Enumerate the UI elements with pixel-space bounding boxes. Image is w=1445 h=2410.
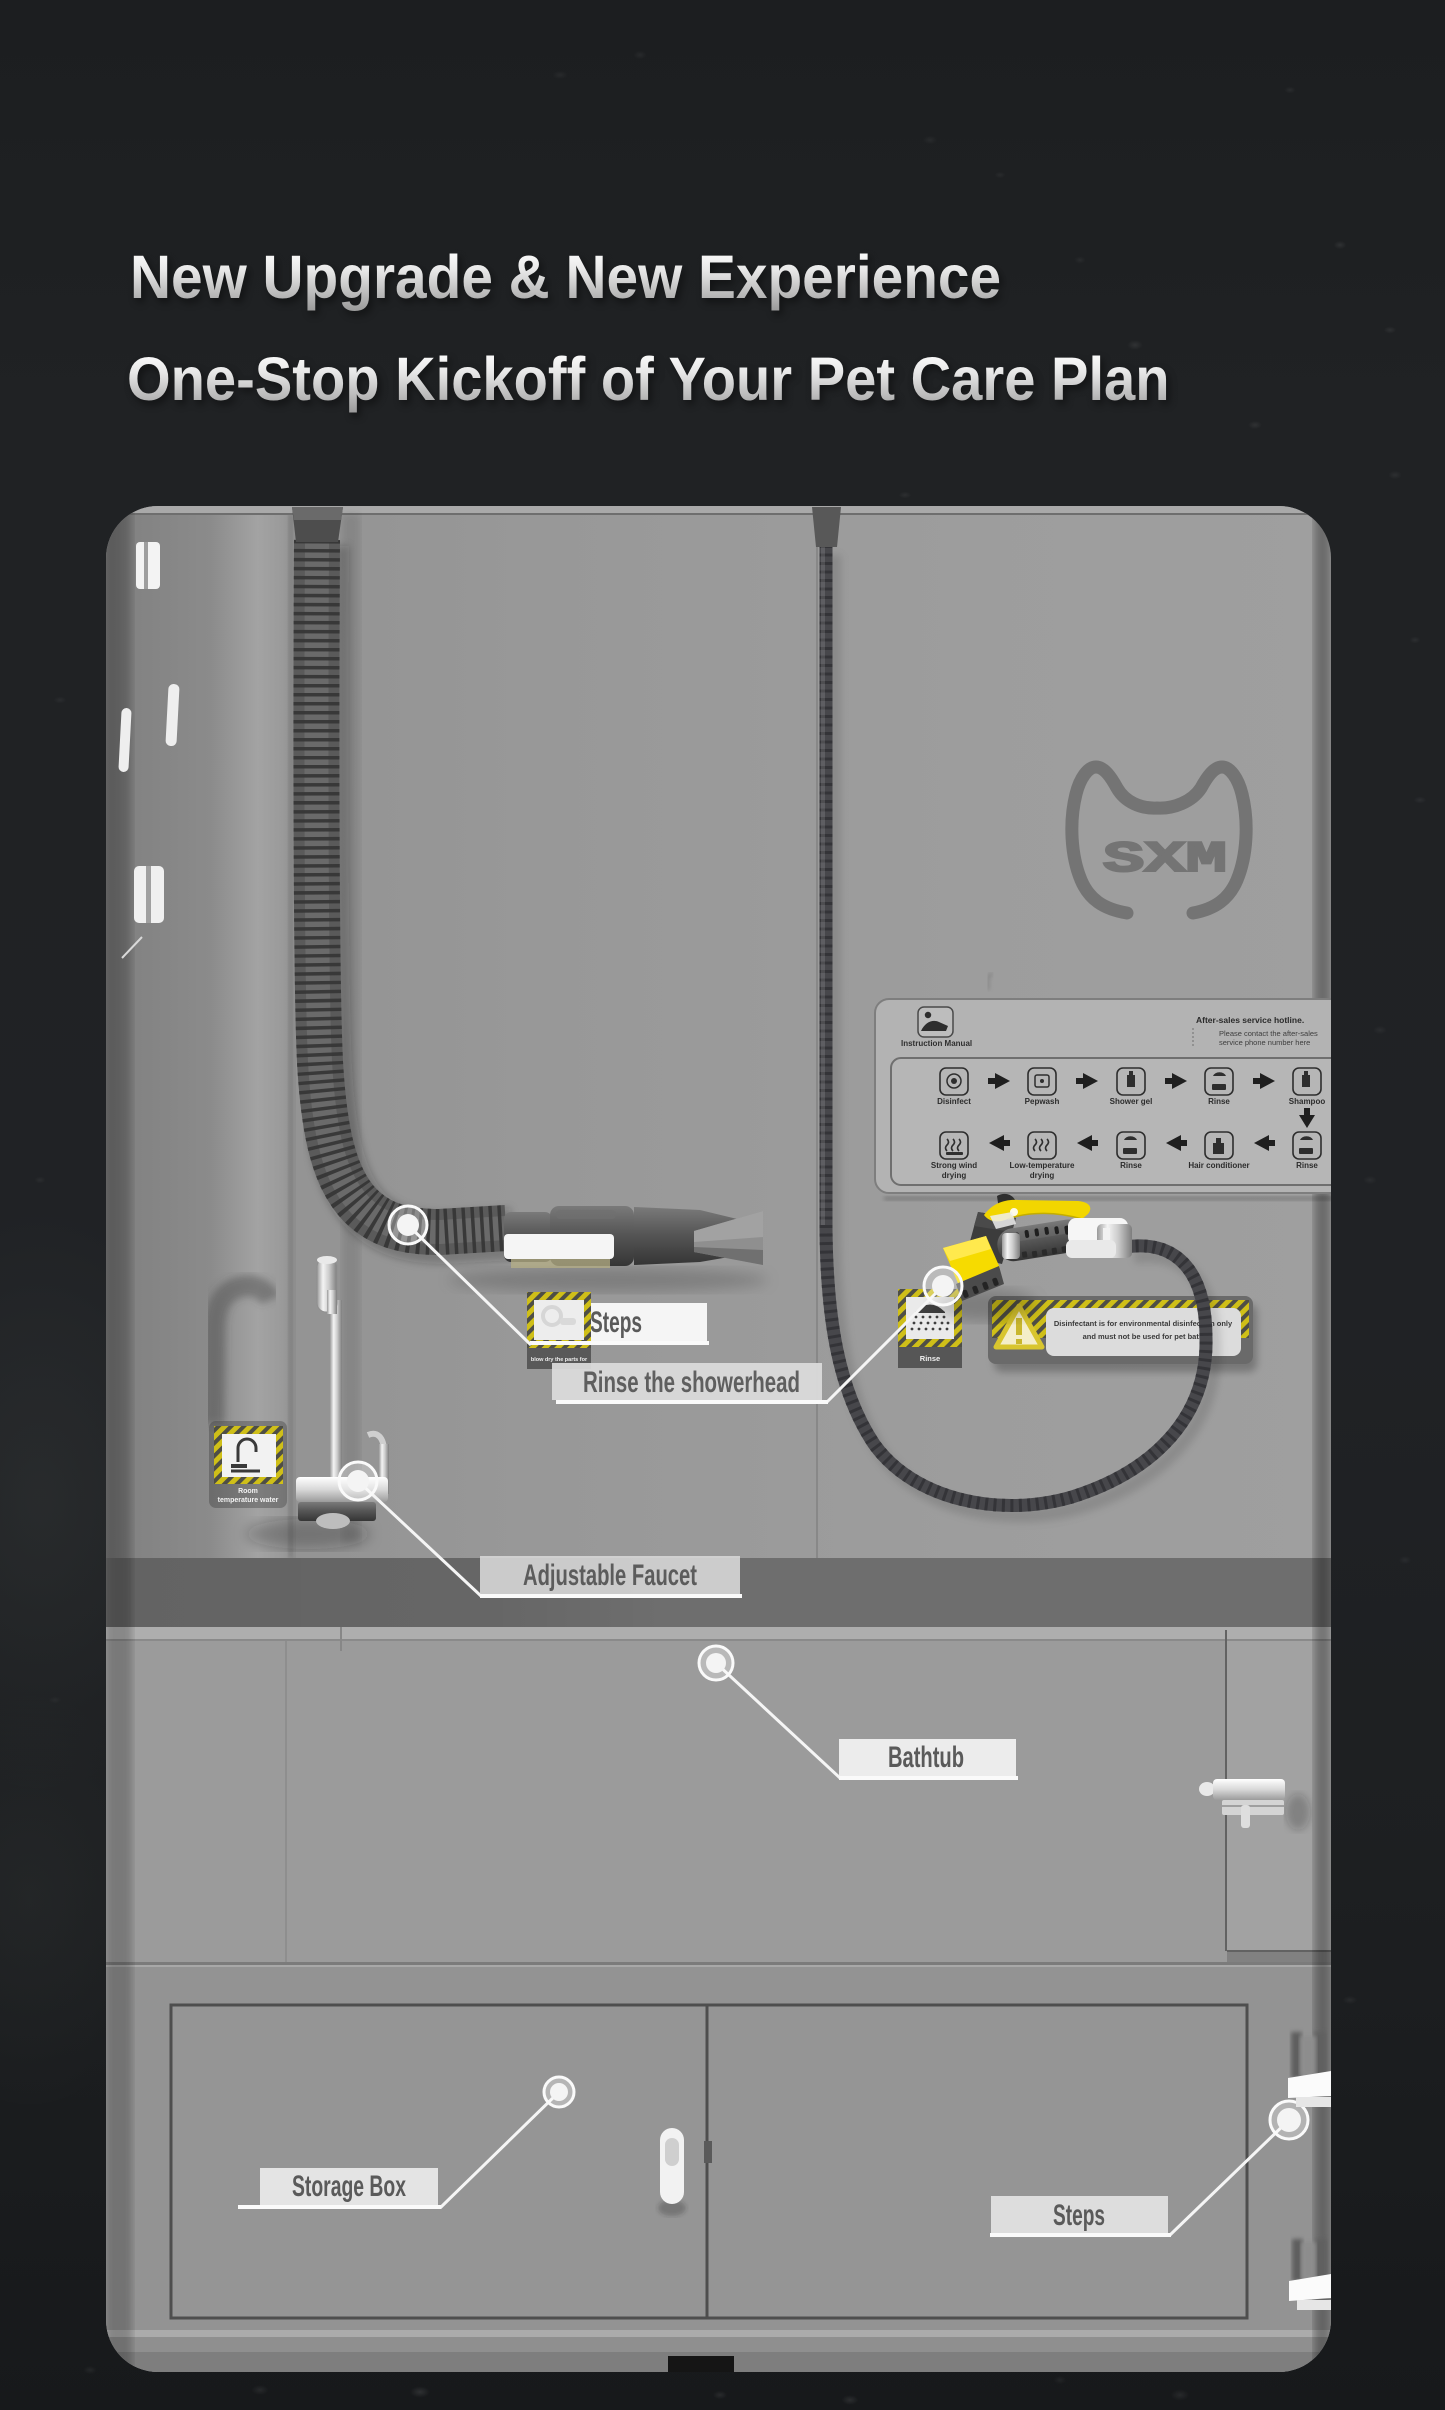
svg-text:Adjustable Faucet: Adjustable Faucet [523, 1559, 697, 1592]
svg-text:blow dry the parts for: blow dry the parts for [531, 1357, 588, 1363]
svg-text:service phone number here: service phone number here [1219, 1038, 1310, 1047]
svg-text:Disinfect: Disinfect [937, 1097, 971, 1106]
svg-text:Rinse: Rinse [1120, 1161, 1142, 1170]
svg-text:Low-temperature: Low-temperature [1010, 1161, 1075, 1170]
svg-text:Please contact the after-sales: Please contact the after-sales [1219, 1029, 1318, 1038]
svg-text:Steps: Steps [1053, 2199, 1105, 2232]
svg-text:drying: drying [1030, 1171, 1055, 1180]
svg-text:Strong wind: Strong wind [931, 1161, 977, 1170]
svg-text:Rinse: Rinse [1208, 1097, 1230, 1106]
svg-text:Hair conditioner: Hair conditioner [1188, 1161, 1249, 1170]
svg-text:Steps: Steps [590, 1306, 642, 1339]
svg-text:Rinse: Rinse [920, 1354, 940, 1363]
svg-text:Storage Box: Storage Box [292, 2170, 406, 2203]
svg-text:drying: drying [942, 1171, 967, 1180]
svg-text:Rinse: Rinse [1296, 1161, 1318, 1170]
svg-text:Bathtub: Bathtub [888, 1741, 964, 1774]
svg-text:Instruction Manual: Instruction Manual [901, 1039, 972, 1048]
svg-text:Pepwash: Pepwash [1025, 1097, 1060, 1106]
svg-text:SXM: SXM [1103, 835, 1227, 885]
svg-text:and must not be used for pet b: and must not be used for pet bath [1083, 1332, 1204, 1341]
svg-text:Room: Room [238, 1488, 258, 1495]
svg-text:After-sales service hotline.: After-sales service hotline. [1196, 1015, 1304, 1025]
svg-text:temperature water: temperature water [218, 1497, 279, 1504]
svg-text:Shower gel: Shower gel [1110, 1097, 1153, 1106]
svg-text:Shampoo: Shampoo [1289, 1097, 1326, 1106]
svg-text:Rinse the showerhead: Rinse the showerhead [583, 1366, 800, 1399]
